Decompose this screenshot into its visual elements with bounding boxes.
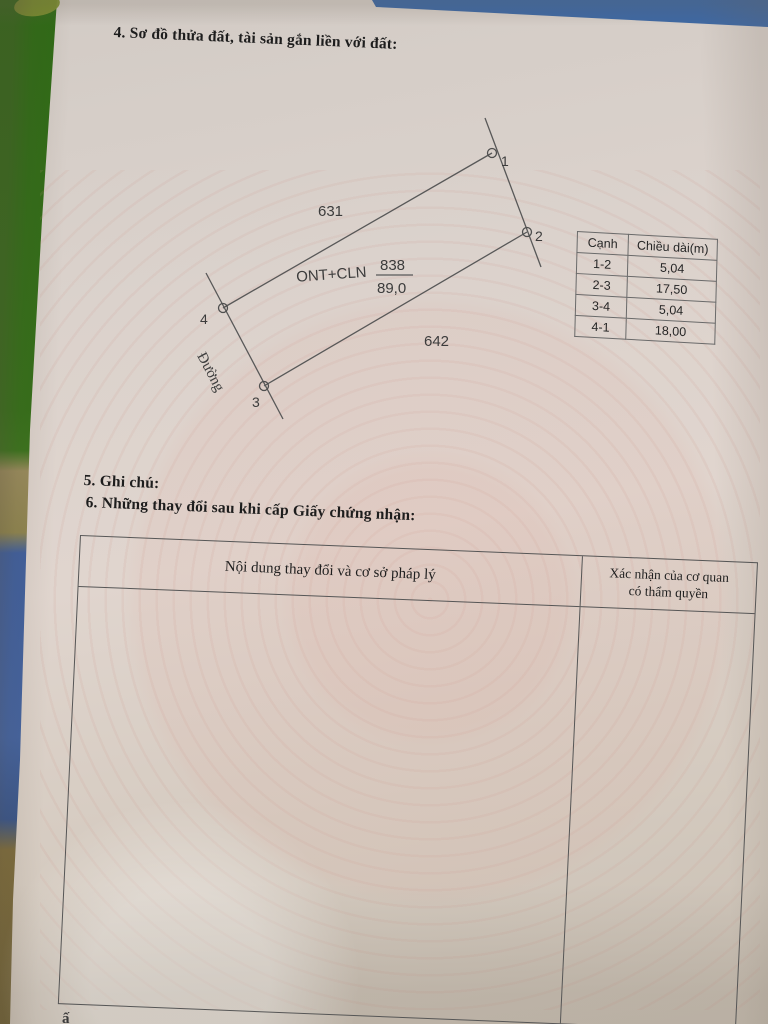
length-cell: 18,00 <box>626 318 716 344</box>
bottom-partial-text: ấ <box>62 1011 70 1024</box>
vertex-2-label: 2 <box>535 228 543 244</box>
adjacent-parcel-bottom-label: 642 <box>424 333 449 350</box>
vertex-4-label: 4 <box>200 311 208 327</box>
parcel-area-label: 89,0 <box>377 280 406 297</box>
authority-confirmation-header: Xác nhận của cơ quan có thẩm quyền <box>580 556 757 613</box>
section4-title: 4. Sơ đồ thửa đất, tài sản gắn liền với … <box>113 24 398 54</box>
land-use-code-label: ONT+CLN <box>296 264 367 286</box>
edge-line-1-2-extended <box>485 118 541 267</box>
changes-content-cell <box>59 587 580 1023</box>
parcel-number-label: 838 <box>380 257 405 274</box>
adjacent-parcel-top-label: 631 <box>318 203 343 220</box>
edge-line-2-3 <box>264 232 527 386</box>
section5-title: 5. Ghi chú: <box>83 472 160 493</box>
edge-cell: 1-2 <box>576 252 628 276</box>
edge-cell: 3-4 <box>575 294 627 318</box>
changes-table: Nội dung thay đổi và cơ sở pháp lý Xác n… <box>58 535 758 1024</box>
photographed-document-page: 4. Sơ đồ thửa đất, tài sản gắn liền với … <box>0 0 768 1024</box>
road-label: Đường <box>193 350 227 395</box>
vertex-3-label: 3 <box>252 394 260 410</box>
edge-column-header: Cạnh <box>577 232 629 256</box>
section6-title: 6. Những thay đổi sau khi cấp Giấy chứng… <box>85 494 416 525</box>
parcel-diagram: 1 2 3 4 631 642 ONT+CLN 838 89,0 Đường <box>150 100 570 440</box>
edge-cell: 4-1 <box>575 315 627 339</box>
vertex-1-label: 1 <box>501 153 509 169</box>
background-left-edge <box>0 0 60 1024</box>
edge-length-table: Cạnh Chiều dài(m) 1-2 5,04 2-3 17,50 3-4… <box>574 231 718 345</box>
edge-line-4-1 <box>223 153 492 308</box>
authority-header-line2: có thẩm quyền <box>628 583 708 603</box>
edge-cell: 2-3 <box>576 273 628 297</box>
authority-confirmation-cell <box>560 607 755 1024</box>
changes-table-body <box>59 587 755 1024</box>
